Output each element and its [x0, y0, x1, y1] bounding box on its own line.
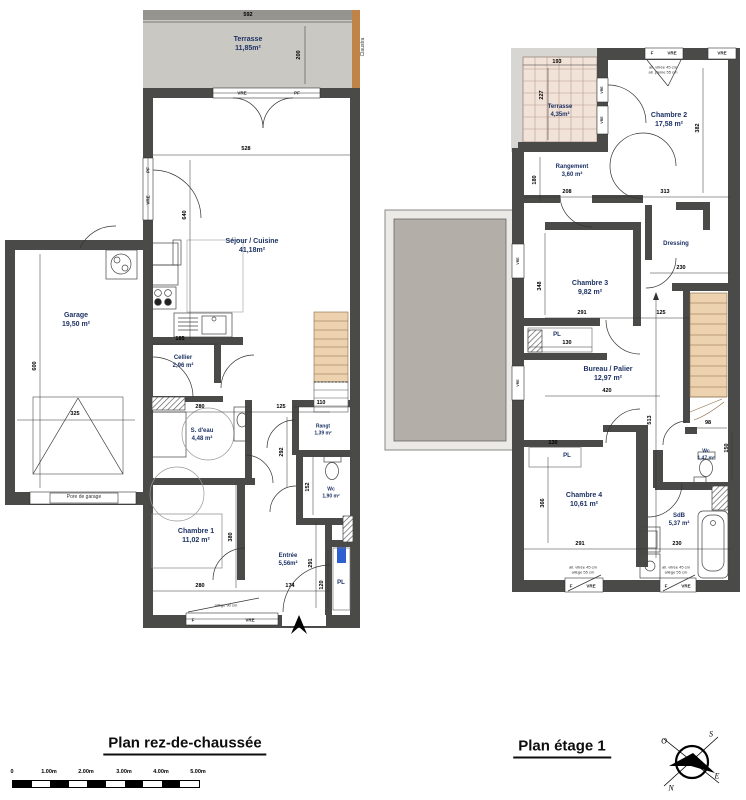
- room-name: SdB: [673, 513, 685, 519]
- window-tag-vre: VRE: [516, 257, 520, 264]
- dim-rangement-w: 208: [562, 189, 571, 195]
- room-name: Rangt: [316, 424, 330, 430]
- dim-terrasse2-w: 193: [552, 59, 561, 65]
- dim-terrasse2-h: 227: [539, 90, 545, 99]
- dim-dressing-w: 230: [676, 265, 685, 271]
- room-name: Terrasse: [234, 36, 263, 43]
- room-label-bureau: Bureau / Palier 12,97 m²: [583, 365, 632, 383]
- compass-rose: [664, 737, 719, 786]
- room-area: 9,82 m²: [578, 289, 602, 296]
- dim-chambre1-h: 380: [228, 532, 234, 541]
- room-label-wc-rdc: Wc 1,90 m²: [322, 487, 339, 500]
- room-label-wc-etage: Wc 1,47 m²: [697, 449, 714, 462]
- compass-east: E: [715, 772, 720, 781]
- room-label-chambre3: Chambre 3 9,82 m²: [572, 279, 608, 297]
- dim-rangt-w: 110: [317, 400, 326, 406]
- room-area: 19,50 m²: [62, 321, 90, 328]
- room-name: Entrée: [279, 553, 298, 559]
- dim-chambre2-w: 313: [660, 189, 669, 195]
- room-label-sdeau: S. d'eau 4,48 m²: [191, 428, 214, 444]
- room-label-rangement: Rangement 3,60 m²: [556, 164, 589, 180]
- claustra-strip: [352, 10, 360, 88]
- room-name: Wc: [327, 487, 335, 493]
- claustra-label: Claustra: [361, 38, 367, 57]
- allege-annotation: all. vitrée 45 cm all. pleine 55 cm: [649, 65, 678, 74]
- room-area: 17,58 m²: [655, 121, 683, 128]
- room-area: 5,37 m²: [669, 521, 690, 527]
- room-label-dressing: Dressing: [663, 241, 689, 249]
- dim-cellier-w: 185: [175, 336, 184, 342]
- dim-terrasse-h: 200: [296, 50, 302, 59]
- allege-annotation: all. vitrée 45 cm allège 55 cm: [662, 565, 690, 574]
- dim-chambre3-w: 291: [577, 310, 586, 316]
- rdc-stairs: [314, 312, 348, 412]
- window-tag-vre: VRE: [237, 91, 246, 96]
- room-name: Cellier: [174, 355, 192, 361]
- room-area: 1,90 m²: [322, 493, 339, 499]
- room-area: 12,97 m²: [594, 375, 622, 382]
- window-tag-vre: VRE: [586, 584, 595, 589]
- room-area: 11,85m²: [235, 45, 261, 52]
- terrasse-etage-frame-top: [511, 48, 601, 58]
- room-area: 1,39 m²: [314, 430, 331, 436]
- dim-chambre3-h: 348: [537, 281, 543, 290]
- window-tag-vre: VRE: [717, 51, 726, 56]
- dim-hall-w: 125: [276, 404, 285, 410]
- room-name: Garage: [64, 312, 88, 319]
- dim-sejour-w: 528: [241, 146, 250, 152]
- scale-tick-2: 2.00m: [78, 769, 94, 775]
- room-name: Chambre 3: [572, 280, 608, 287]
- room-name: Rangement: [556, 164, 589, 170]
- allege-annotation: all. vitrée 45 cm allège 55 cm: [569, 565, 597, 574]
- window-tag-pf: PF: [146, 167, 151, 173]
- dim-garage-door-w: 325: [70, 411, 79, 417]
- etage-stairs: [690, 293, 727, 420]
- window-tag-f: F: [651, 51, 654, 56]
- roof-fill: [394, 219, 506, 441]
- allege-line2: all. pleine 55 cm: [649, 69, 678, 74]
- room-label-sdb: SdB 5,37 m²: [669, 513, 690, 529]
- window-tag-vre: VRE: [600, 116, 604, 123]
- room-area: 5,56m²: [278, 561, 297, 567]
- dim-mid-h: 513: [647, 415, 653, 424]
- compass-north: N: [668, 784, 673, 793]
- scale-tick-5: 5.00m: [190, 769, 206, 775]
- room-label-sejour: Séjour / Cuisine 41,18m²: [226, 237, 279, 255]
- window-tag-vre: VRE: [600, 86, 604, 93]
- window-tag-f: F: [665, 584, 668, 589]
- window-tag-vre: VRE: [146, 195, 151, 204]
- room-label-terrasse-rdc: Terrasse 11,85m²: [234, 35, 263, 53]
- dim-wc2-h: 150: [724, 443, 730, 452]
- compass-south: S: [709, 730, 713, 739]
- dim-sejour-h: 640: [182, 210, 188, 219]
- dim-chambre1-w: 280: [195, 583, 204, 589]
- dimension-lines: [17, 22, 732, 608]
- window-tag-f: F: [570, 584, 573, 589]
- dim-chambre4-h: 366: [540, 498, 546, 507]
- room-area: 41,18m²: [239, 247, 265, 254]
- plan-linework: [0, 0, 746, 800]
- window-tag-vre: VRE: [667, 51, 676, 56]
- room-name: Chambre 4: [566, 492, 602, 499]
- room-name: Chambre 2: [651, 112, 687, 119]
- dim-sdeau-h: 292: [279, 447, 285, 456]
- dim-chambre4-w: 291: [575, 541, 584, 547]
- room-name: Terrasse: [548, 104, 573, 110]
- floor-plan-canvas: Terrasse 11,85m² Séjour / Cuisine 41,18m…: [0, 0, 746, 800]
- scale-tick-0: 0: [10, 769, 13, 775]
- dim-terrasse-w: 592: [243, 12, 252, 18]
- room-area: 4,48 m²: [192, 436, 213, 442]
- room-label-garage: Garage 19,50 m²: [62, 311, 90, 329]
- scale-tick-1: 1.00m: [41, 769, 57, 775]
- allege-line2: allège 55 cm: [572, 569, 595, 574]
- title-etage: Plan étage 1: [513, 738, 611, 759]
- room-area: 10,61 m²: [570, 501, 598, 508]
- room-label-rangt: Rangt 1,39 m²: [314, 424, 331, 437]
- rdc-fixtures: [33, 240, 353, 610]
- stair-direction-arrow: [653, 292, 659, 300]
- garage-door-label: Pore de garage: [67, 495, 101, 501]
- dim-garage-h: 600: [32, 361, 38, 370]
- room-name: Séjour / Cuisine: [226, 238, 279, 245]
- scale-tick-3: 3.00m: [116, 769, 132, 775]
- compass-west: O: [661, 737, 667, 746]
- room-label-pl-b: PL: [563, 453, 571, 461]
- window-tag-pf: PF: [294, 91, 300, 96]
- room-name: Chambre 1: [178, 528, 214, 535]
- dim-bureau-w: 420: [602, 388, 611, 394]
- room-label-chambre4: Chambre 4 10,61 m²: [566, 491, 602, 509]
- dim-hall2-w: 125: [656, 310, 665, 316]
- window-tag-vre: VRE: [681, 584, 690, 589]
- room-area: 11,02 m²: [182, 537, 210, 544]
- dim-entree-h: 291: [308, 558, 314, 567]
- title-rdc: Plan rez-de-chaussée: [103, 735, 266, 756]
- room-label-cellier: Cellier 2,96 m²: [173, 355, 194, 371]
- dim-rangement-h: 180: [532, 175, 538, 184]
- window-tag-f: F: [192, 618, 195, 623]
- room-area: 3,60 m²: [562, 172, 583, 178]
- room-name: Bureau / Palier: [583, 366, 632, 373]
- scale-bar: [12, 780, 200, 788]
- dim-wc2-w: 98: [705, 420, 711, 426]
- dim-pl-a-w: 130: [562, 340, 571, 346]
- room-name: Wc: [702, 449, 710, 455]
- dim-chambre2-h: 382: [695, 123, 701, 132]
- dim-sdeau-w: 280: [195, 404, 204, 410]
- dim-pl-b-w: 130: [548, 440, 557, 446]
- room-area: 2,96 m²: [173, 363, 194, 369]
- room-label-pl-a: PL: [553, 332, 561, 340]
- terrasse-etage-frame-left: [511, 48, 523, 152]
- room-label-terrasse-etage: Terrasse 4,35m²: [548, 104, 573, 120]
- dim-sdb-w: 230: [672, 541, 681, 547]
- dim-entree-w: 174: [285, 583, 294, 589]
- dim-pl-h: 120: [319, 580, 325, 589]
- room-name: S. d'eau: [191, 428, 214, 434]
- room-area: 1,47 m²: [697, 455, 714, 461]
- dim-wc-h: 152: [305, 482, 311, 491]
- scale-tick-4: 4.00m: [153, 769, 169, 775]
- area-fills: [143, 10, 601, 450]
- window-tag-vre: VRE: [516, 379, 520, 386]
- room-label-chambre1: Chambre 1 11,02 m²: [178, 527, 214, 545]
- room-label-pl-rdc: PL: [337, 580, 345, 588]
- room-area: 4,35m²: [550, 112, 569, 118]
- room-label-chambre2: Chambre 2 17,58 m²: [651, 111, 687, 129]
- room-label-entree: Entrée 5,56m²: [278, 553, 297, 569]
- terrasse-rdc-fill: [143, 20, 352, 88]
- allege-line2: allège 55 cm: [665, 569, 688, 574]
- window-tag-vre: VRE: [245, 618, 254, 623]
- allege-annotation: allège 90 cm: [215, 604, 238, 609]
- windows: [30, 48, 736, 626]
